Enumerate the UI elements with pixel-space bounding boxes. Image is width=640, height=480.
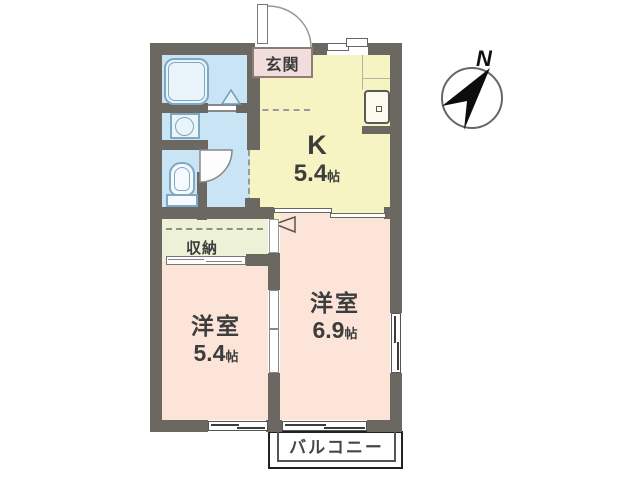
window-right-sash-1 [394, 316, 396, 343]
wall-bottom-right [367, 420, 402, 432]
compass: N [432, 40, 522, 140]
closet-pole-dashed-line [166, 228, 263, 230]
bathroom-door-fold-icon [220, 88, 242, 106]
closet-door-line-2 [206, 261, 242, 262]
bathtub [164, 58, 209, 105]
closet-label: 収納 [152, 237, 252, 258]
kitchen-counter-line-vertical [362, 55, 363, 90]
window-room-small [208, 421, 268, 431]
window-right-sash-2 [397, 342, 399, 370]
toilet-tank [166, 194, 198, 207]
kitchen-label: K 5.4帖 [267, 131, 367, 190]
window-room-large [282, 421, 367, 431]
entrance-door-arc [262, 0, 317, 50]
kitchen-counter-line-horizontal [362, 78, 390, 79]
kitchen-room-slide-pane-2 [330, 213, 386, 218]
wall-right-upper [390, 43, 402, 313]
balcony-inner-rail: バルコニー [277, 431, 396, 462]
balcony-label: バルコニー [289, 433, 384, 458]
window-large-sash-1 [285, 424, 326, 426]
wall-mid-horizontal [162, 207, 274, 219]
western-room-small-size: 5.4帖 [194, 339, 239, 371]
wall-interroom-upper [268, 253, 280, 290]
refrigerator-handle-icon [376, 106, 382, 112]
wall-interroom-lower [268, 373, 280, 420]
wall-bottom-left [150, 420, 208, 432]
interroom-door-tick [269, 328, 279, 330]
toilet [169, 162, 195, 196]
wall-top-left [150, 43, 257, 55]
western-room-small-label: 洋室 5.4帖 [166, 313, 266, 371]
western-room-large-label: 洋室 6.9帖 [285, 290, 385, 348]
window-small-sash-1 [211, 424, 239, 426]
western-room-large-size: 6.9帖 [313, 316, 358, 348]
closet-door-line-1 [168, 259, 204, 260]
wall-junction-stub [245, 198, 260, 208]
interroom-sliding-door [269, 290, 279, 373]
window-right-wall [391, 313, 401, 373]
refrigerator [364, 90, 390, 124]
western-room-small-name: 洋室 [191, 313, 241, 339]
western-room-large-name: 洋室 [310, 290, 360, 316]
kitchen-name: K [307, 131, 327, 160]
window-large-sash-2 [324, 427, 365, 429]
kitchen-room-slide-pane-1 [274, 208, 332, 213]
kitchen-window-pane-right [346, 38, 368, 47]
window-small-sash-2 [237, 427, 265, 429]
floorplan-canvas: 玄関 K 5.4帖 洋室 6.9帖 洋室 5.4帖 収納 バルコニー N [0, 0, 640, 480]
closet-side-jamb [269, 219, 279, 253]
kitchen-size: 5.4帖 [294, 160, 340, 190]
toilet-door-swing [195, 146, 239, 190]
compass-n-label: N [476, 46, 493, 71]
genkan-label-box: 玄関 [252, 47, 313, 78]
wall-bottom-mid [266, 420, 282, 432]
washbasin [170, 113, 200, 139]
genkan-label: 玄関 [265, 51, 299, 75]
genkan-step-dashed-line [252, 109, 310, 111]
